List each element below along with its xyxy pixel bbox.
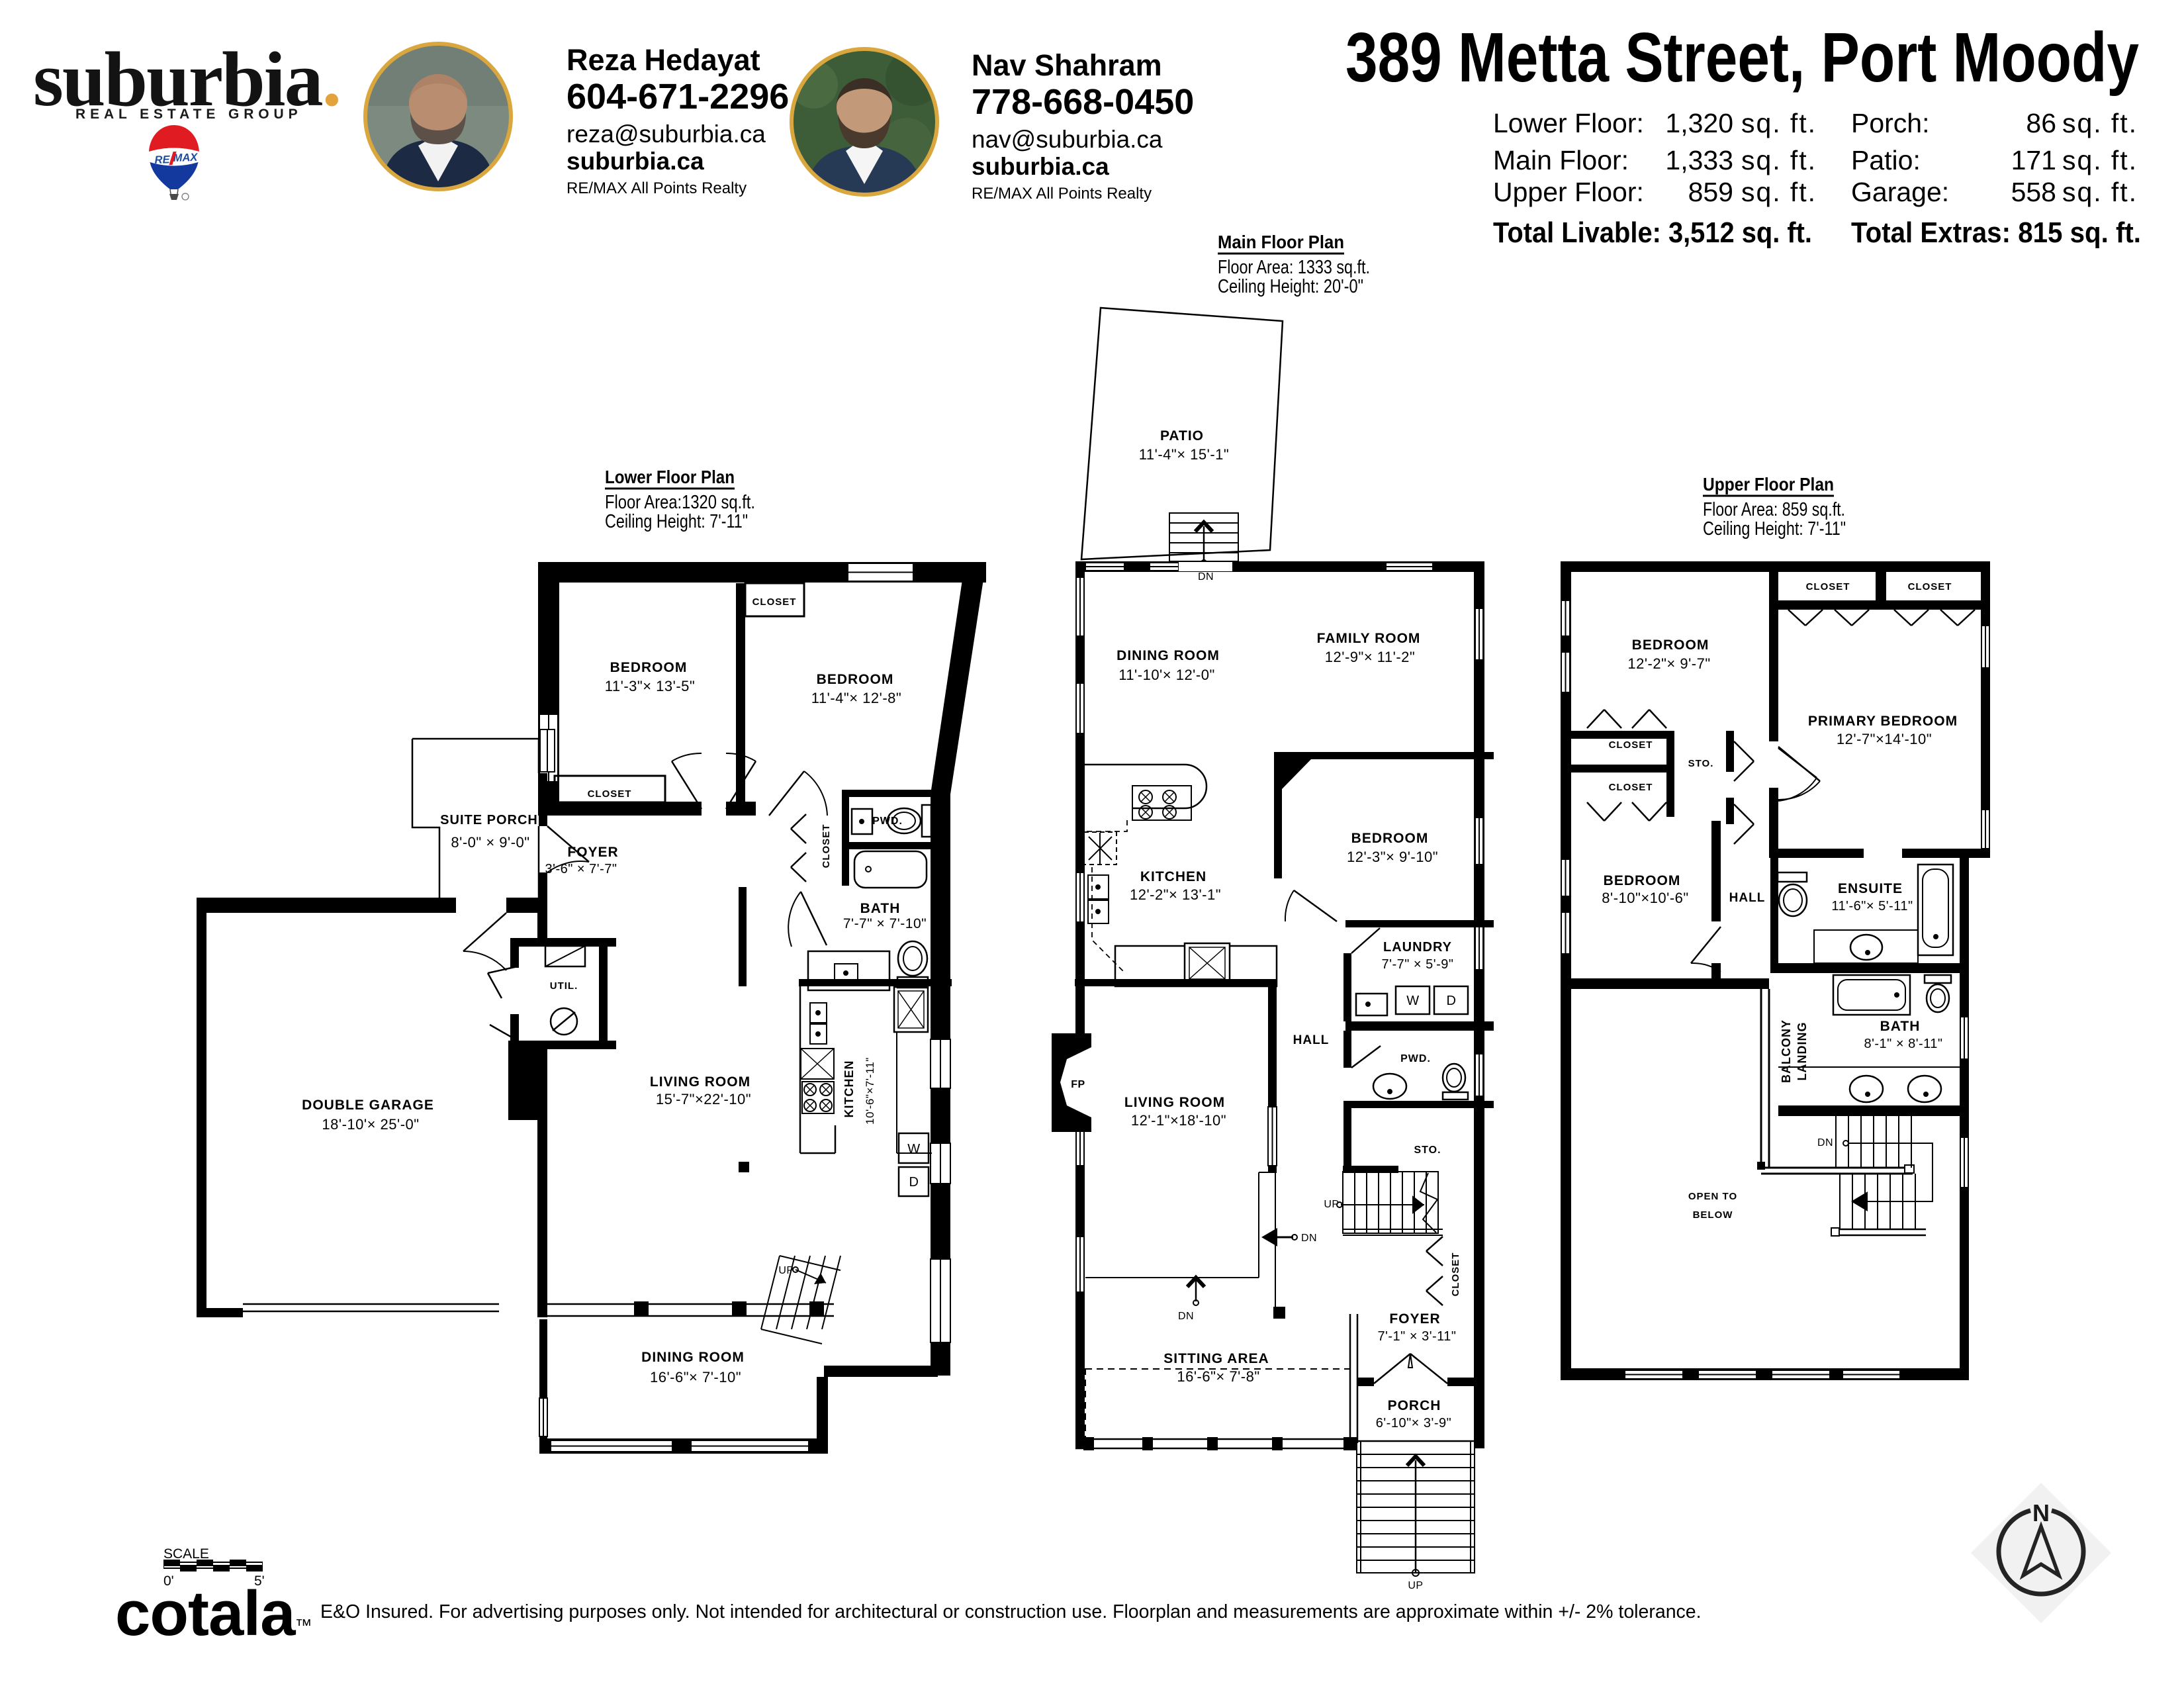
svg-text:FAMILY ROOM: FAMILY ROOM: [1317, 631, 1421, 646]
svg-text:UTIL.: UTIL.: [550, 980, 578, 992]
svg-text:FOYER: FOYER: [567, 845, 618, 860]
svg-text:7'-7" × 7'-10": 7'-7" × 7'-10": [843, 916, 927, 931]
svg-text:12'-3"× 9'-10": 12'-3"× 9'-10": [1347, 849, 1438, 865]
svg-text:CLOSET: CLOSET: [1609, 782, 1653, 793]
svg-text:Patio:: Patio:: [1851, 145, 1921, 175]
svg-text:LANDING: LANDING: [1796, 1022, 1809, 1081]
svg-text:11'-3"× 13'-5": 11'-3"× 13'-5": [605, 678, 695, 694]
svg-text:LAUNDRY: LAUNDRY: [1383, 940, 1452, 955]
svg-text:6'-10"× 3'-9": 6'-10"× 3'-9": [1376, 1416, 1452, 1430]
svg-text:CLOSET: CLOSET: [588, 788, 632, 800]
svg-text:CLOSET: CLOSET: [752, 596, 797, 608]
svg-text:Lower Floor:: Lower Floor:: [1493, 108, 1644, 138]
svg-text:18'-10'× 25'-0": 18'-10'× 25'-0": [322, 1116, 419, 1133]
svg-text:BATH: BATH: [1880, 1019, 1921, 1034]
svg-text:12'-2"× 9'-7": 12'-2"× 9'-7": [1627, 655, 1710, 672]
svg-text:16'-6"× 7'-10": 16'-6"× 7'-10": [650, 1369, 741, 1385]
svg-text:CLOSET: CLOSET: [1450, 1252, 1461, 1297]
svg-text:DN: DN: [1198, 571, 1214, 583]
svg-text:Ceiling Height: 20'-0": Ceiling Height: 20'-0": [1218, 276, 1363, 297]
svg-text:11'-6"× 5'-11": 11'-6"× 5'-11": [1831, 899, 1913, 914]
svg-text:1,320: 1,320: [1665, 108, 1733, 138]
svg-text:BEDROOM: BEDROOM: [1604, 873, 1681, 888]
svg-text:BEDROOM: BEDROOM: [817, 672, 894, 687]
svg-text:558: 558: [2011, 177, 2056, 207]
svg-text:CLOSET: CLOSET: [1806, 581, 1850, 592]
svg-text:W: W: [1406, 994, 1419, 1008]
svg-text:11'-4"× 12'-8": 11'-4"× 12'-8": [811, 690, 901, 706]
svg-text:8'-1" × 8'-11": 8'-1" × 8'-11": [1864, 1037, 1942, 1051]
svg-text:DOUBLE GARAGE: DOUBLE GARAGE: [302, 1098, 434, 1113]
svg-text:D: D: [1447, 994, 1457, 1008]
svg-text:CLOSET: CLOSET: [1609, 739, 1653, 751]
svg-text:PORCH: PORCH: [1388, 1398, 1441, 1413]
svg-text:sq. ft.: sq. ft.: [2062, 108, 2136, 138]
svg-text:sq. ft.: sq. ft.: [1741, 108, 1815, 138]
svg-text:BEDROOM: BEDROOM: [610, 660, 688, 675]
svg-text:OPEN TO: OPEN TO: [1688, 1191, 1737, 1202]
svg-text:KITCHEN: KITCHEN: [842, 1060, 856, 1118]
svg-text:BALCONY: BALCONY: [1780, 1019, 1793, 1083]
svg-text:SUITE PORCH: SUITE PORCH: [440, 813, 538, 827]
svg-text:CLOSET: CLOSET: [1908, 581, 1952, 592]
svg-text:Ceiling Height: 7'-11": Ceiling Height: 7'-11": [605, 511, 748, 532]
svg-text:sq. ft.: sq. ft.: [2062, 177, 2136, 207]
svg-text:Ceiling Height: 7'-11": Ceiling Height: 7'-11": [1703, 518, 1846, 539]
svg-text:UP: UP: [778, 1265, 794, 1276]
svg-text:11'-10'× 12'-0": 11'-10'× 12'-0": [1118, 667, 1215, 683]
svg-text:1,333: 1,333: [1665, 145, 1733, 175]
svg-text:sq. ft.: sq. ft.: [2062, 145, 2136, 175]
svg-text:sq. ft.: sq. ft.: [1741, 145, 1815, 175]
svg-text:10'-6"×7'-11": 10'-6"×7'-11": [864, 1057, 876, 1125]
svg-text:11'-4"× 15'-1": 11'-4"× 15'-1": [1139, 446, 1229, 463]
svg-text:12'-9"× 11'-2": 12'-9"× 11'-2": [1325, 649, 1415, 665]
svg-text:Total Livable: 3,512 sq. ft.: Total Livable: 3,512 sq. ft.: [1493, 216, 1812, 249]
svg-text:FP: FP: [1071, 1079, 1085, 1090]
svg-text:15'-7"×22'-10": 15'-7"×22'-10": [656, 1091, 751, 1107]
svg-text:SITTING AREA: SITTING AREA: [1163, 1351, 1269, 1366]
svg-text:7'-7" × 5'-9": 7'-7" × 5'-9": [1382, 957, 1454, 972]
svg-text:PRIMARY BEDROOM: PRIMARY BEDROOM: [1808, 714, 1958, 729]
svg-text:sq. ft.: sq. ft.: [1741, 177, 1815, 207]
svg-text:HALL: HALL: [1729, 891, 1766, 905]
svg-text:PWD.: PWD.: [1400, 1053, 1431, 1064]
svg-text:STO.: STO.: [1688, 758, 1714, 769]
svg-text:171: 171: [2011, 145, 2056, 175]
svg-text:BELOW: BELOW: [1693, 1209, 1733, 1221]
svg-text:Lower Floor Plan: Lower Floor Plan: [605, 467, 735, 487]
svg-text:KITCHEN: KITCHEN: [1140, 869, 1206, 884]
svg-text:DINING ROOM: DINING ROOM: [641, 1350, 745, 1365]
svg-text:8'-0" × 9'-0": 8'-0" × 9'-0": [451, 834, 529, 851]
svg-text:7'-1" × 3'-11": 7'-1" × 3'-11": [1377, 1329, 1456, 1344]
svg-text:Floor Area: 859 sq.ft.: Floor Area: 859 sq.ft.: [1703, 499, 1845, 520]
svg-text:DN: DN: [1817, 1137, 1833, 1149]
svg-text:8'-10"×10'-6": 8'-10"×10'-6": [1602, 890, 1688, 906]
svg-text:BEDROOM: BEDROOM: [1632, 637, 1709, 653]
svg-text:UP: UP: [1408, 1580, 1423, 1591]
svg-text:86: 86: [2026, 108, 2056, 138]
svg-text:HALL: HALL: [1293, 1033, 1330, 1047]
svg-text:LIVING ROOM: LIVING ROOM: [1124, 1095, 1225, 1110]
svg-text:Upper Floor Plan: Upper Floor Plan: [1703, 474, 1834, 494]
svg-text:Porch:: Porch:: [1851, 108, 1930, 138]
svg-text:ENSUITE: ENSUITE: [1838, 881, 1903, 896]
svg-text:PWD.: PWD.: [872, 816, 903, 827]
svg-text:859: 859: [1688, 177, 1733, 207]
svg-text:12'-7"×14'-10": 12'-7"×14'-10": [1837, 731, 1932, 747]
svg-text:Floor Area: 1333 sq.ft.: Floor Area: 1333 sq.ft.: [1218, 257, 1370, 278]
svg-text:LIVING ROOM: LIVING ROOM: [650, 1074, 751, 1090]
svg-text:DN: DN: [1301, 1233, 1317, 1244]
svg-text:DINING ROOM: DINING ROOM: [1116, 648, 1220, 663]
svg-text:W: W: [907, 1142, 920, 1156]
svg-text:BATH: BATH: [860, 901, 901, 916]
svg-text:D: D: [909, 1175, 919, 1190]
svg-text:FOYER: FOYER: [1389, 1311, 1440, 1327]
svg-text:Floor Area:1320 sq.ft.: Floor Area:1320 sq.ft.: [605, 492, 755, 513]
svg-text:12'-2"× 13'-1": 12'-2"× 13'-1": [1130, 886, 1221, 903]
svg-text:16'-6"× 7'-8": 16'-6"× 7'-8": [1177, 1368, 1259, 1385]
svg-text:Upper Floor:: Upper Floor:: [1493, 177, 1644, 207]
svg-text:STO.: STO.: [1414, 1145, 1441, 1156]
svg-text:Main Floor:: Main Floor:: [1493, 145, 1629, 175]
svg-text:Main Floor Plan: Main Floor Plan: [1218, 232, 1344, 252]
svg-text:Total Extras: 815 sq. ft.: Total Extras: 815 sq. ft.: [1851, 216, 2141, 249]
svg-text:3'-6" × 7'-7": 3'-6" × 7'-7": [545, 862, 617, 876]
svg-text:12'-1"×18'-10": 12'-1"×18'-10": [1131, 1112, 1226, 1129]
svg-text:DN: DN: [1178, 1311, 1194, 1322]
svg-text:CLOSET: CLOSET: [821, 824, 832, 868]
svg-text:BEDROOM: BEDROOM: [1351, 831, 1429, 846]
svg-text:Garage:: Garage:: [1851, 177, 1949, 207]
svg-text:389 Metta Street, Port Moody: 389 Metta Street, Port Moody: [1345, 19, 2139, 97]
svg-text:PATIO: PATIO: [1160, 428, 1204, 444]
